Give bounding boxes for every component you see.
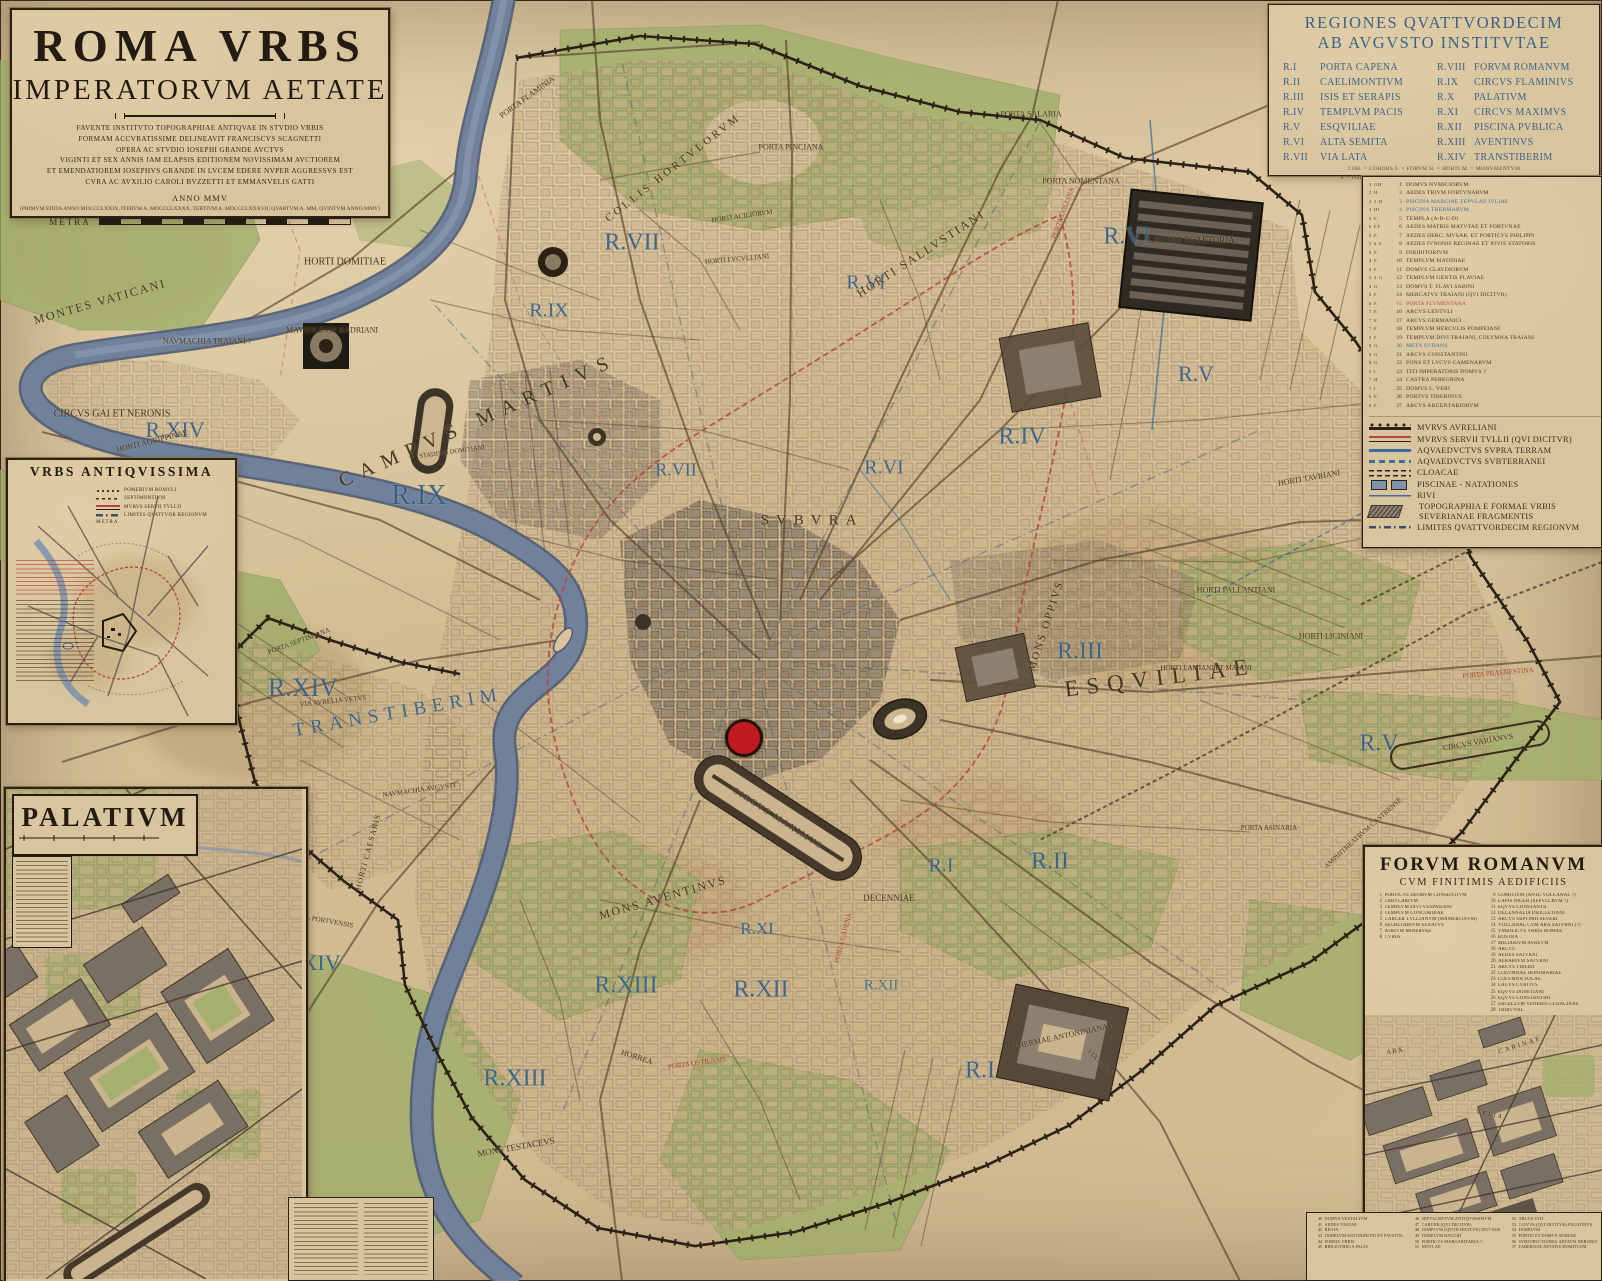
region-row: R.IVTEMPLVM PACIS [1283,105,1437,120]
monument-row: 6 F27ARCVS ARGENTARIORVM [1369,402,1601,410]
rivi-symbol [1369,491,1411,500]
urbs-antiquissima-inset: VRBS ANTIQVISSIMA POMERIVM ROMVLISEPTIMO… [6,458,237,725]
monument-row: 3 HI4PISCINA THERMARVM [1369,206,1601,214]
monument-row: 2 3 H3PISCINA MARCIAE TEPVLAE IVLIAE [1369,198,1601,206]
forma-symbol [1367,505,1403,518]
regiones-panel: REGIONES QVATTVORDECIM AB AVGVSTO INSTIT… [1268,4,1600,176]
monument-row: 5 F14MERCATVS TRAIANI (QVI DICITVR) [1369,291,1601,299]
castra-praetoria [1119,190,1263,321]
monument-row: 6 G21ARCVS CONSTANTINI [1369,351,1601,359]
monument-row: 7 E16ARCVS LENTVLI [1369,308,1601,316]
forum-list-left: 1PORTICVS DEORVM CONSENTIVM2TABVLARIVM3T… [1371,893,1485,1013]
palatium-inset: PALATIVM [4,787,308,1281]
forum-subtitle: CVM FINITIMIS AEDIFICIIS [1365,877,1602,888]
forum-bottom-col2: 46SEPVLCRETVM ANTIQVISSIMVM47CARCER (QVI… [1408,1216,1500,1277]
pomerium-symbol [96,488,120,494]
legend-row: AQVAEDVCTVS SVBTERRANEI [1369,457,1601,466]
region-row: R.IXCIRCVS FLAMINIVS [1437,75,1591,90]
mausoleum-hadriani [303,323,349,369]
region-row: R.VESQVILIAE [1283,120,1437,135]
forum-row: 57TABERNAE AETATIS DOMITIANI [1505,1244,1597,1250]
legend-row: CLOACAE [1369,468,1601,477]
urbs-legend-row: SEPTIMONTIVM [96,496,207,502]
region-row: R.XIIIAVENTINVS [1437,135,1591,150]
monument-row: 5 F19TEMPLVM DIVI TRAIANI, COLVMNA TRAIA… [1369,334,1601,342]
regiones-list-left: R.IPORTA CAPENAR.IICAELIMONTIVMR.IIIISIS… [1283,60,1437,165]
dedication-line: VIGINTI ET SEX ANNIS IAM ELAPSIS EDITION… [12,155,388,166]
piscinae-symbol [1369,480,1411,489]
monument-row: 7 F18TEMPLVM HERCVLIS POMPEIANI [1369,325,1601,333]
forum-row: 51INSVLAE [1408,1244,1500,1250]
urbs-legend-row: MVRVS SERVII TVLLII [96,504,207,510]
region-row: R.IIIISIS ET SERAPIS [1283,90,1437,105]
forum-list-right: 9COMITIVM (ANTE VOLCANAL ?)10LAPIS NIGER… [1485,893,1599,1013]
monument-row: 3 GH1DOMVS NVMICIORVM [1369,181,1601,189]
forum-bottom-lists: 40DOMVS VESTALIVM41AEDES VESTAE42REGIA43… [1306,1212,1602,1281]
regiones-title-line2: AB AVGVSTO INSTITVTAE [1269,33,1599,53]
anno-label: ANNO MMV [12,193,388,203]
roma-vrbs-map: R.VIIR.IXR.IXR.VIIR.VIR.VIR.VIR.IVR.VR.V… [0,0,1602,1281]
urbs-inset-legend: POMERIVM ROMVLISEPTIMONTIVMMVRVS SERVII … [96,486,207,525]
forum-row: 28TRIBVNAL [1485,1008,1599,1013]
region-row: R.IPORTA CAPENA [1283,60,1437,75]
palatium-bottom-key [288,1197,434,1281]
palatium-legend-box [12,856,72,948]
dedication-text: FAVENTE INSTITVTO TOPOGRAPHIAE ANTIQVAE … [12,123,388,188]
monument-row: 4 G13DOMVS T. FLAVI SABINI [1369,283,1601,291]
servian-symbol [1369,435,1411,444]
region-row: R.VIIVIA LATA [1283,150,1437,165]
monument-row: 5 E5TEMPLA (A-B-C-D) [1369,215,1601,223]
scale-bar [99,218,351,225]
palatium-scale-squiggle [14,833,164,843]
monument-row: 6 E15PORTA FLVMENTANA [1369,300,1601,308]
monument-row: 2 H2AEDES TRIVM FORTVNARVM [1369,189,1601,197]
theatre-marcellus [635,614,651,630]
dedication-line: OPERA AC STVDIO IOSEPHI GRANDE AVCTVS [12,145,388,156]
dedication-line: FAVENTE INSTITVTO TOPOGRAPHIAE ANTIQVAE … [12,123,388,134]
monument-row: 4 E10TEMPLVM MATIDIAE [1369,257,1601,265]
monument-row: 5 6 E8AEDES IVNONIS REGINAE ET IOVIS STA… [1369,240,1601,248]
palatium-title-box: PALATIVM [12,794,198,856]
map-subtitle: IMPERATORVM AETATE [12,74,388,107]
dedication-line: CVRA AC AVXILIO CAROLI BVZZETTI ET EMMAN… [12,177,388,188]
legend-row: MVRVS SERVII TVLLII (QVI DICITVR) [1369,435,1601,444]
dedication-line: ET EMENDATIOREM IOSEPHVS GRANDE IN LVCEM… [12,166,388,177]
palatium-title: PALATIVM [14,802,196,833]
abbreviation-line: COH. = COHORS F. = FORVM H. = HORTI M. =… [1269,165,1599,174]
monument-row: 4 F11DOMVS CLAVDIORVM [1369,266,1601,274]
legend-row: LIMITES QVATTVORDECIM REGIONVM [1369,523,1601,532]
urbs-legend-row: POMERIVM ROMVLI [96,488,207,494]
map-legend: MVRVS AVRELIANIMVRVS SERVII TVLLII (QVI … [1369,416,1601,532]
legend-row: PISCINAE - NATATIONES [1369,480,1601,489]
monument-row: 7 E17ARCVS GERMANICI [1369,317,1601,325]
dedication-line: FORMAM ACCVRATISSIME DELINEAVIT FRANCISC… [12,134,388,145]
monument-row: 6 E26PORTVS TIBERINVS [1369,393,1601,401]
title-cartouche: ROMA VRBS IMPERATORVM AETATE FAVENTE INS… [10,8,390,218]
legend-row: RIVI [1369,491,1601,500]
region-row: R.VIIIFORVM ROMANVM [1437,60,1591,75]
baths-diocletian [999,323,1101,412]
stadium-domitiani [408,386,456,476]
forum-title: FORVM ROMANVM [1365,854,1602,876]
urbs-inset-title: VRBS ANTIQVISSIMA [8,464,235,480]
monument-row: 5 E7AEDES HERC. MVSAR. ET PORTICVS PHILI… [1369,232,1601,240]
limites-symbol [96,512,120,518]
monument-row: 3 4 G12TEMPLVM GENTIS FLAVIAE [1369,274,1601,282]
urbs-inset-key [16,600,94,682]
urbs-inset-key-red [16,560,94,596]
regiones-list-right: R.VIIIFORVM ROMANVMR.IXCIRCVS FLAMINIVSR… [1437,60,1591,165]
legend-row: TOPOGRAPHIA E FORMAE VRBIS SEVERIANAE FR… [1369,502,1601,520]
editions-note: (PRIMVM EDITA ANNO MDCCCLXXIX, ITERVM A.… [12,206,388,212]
forum-row: 45BIBLIOTHECA PACIS [1311,1244,1403,1250]
aurelian-symbol [1369,423,1411,432]
monument-row: 5 I23TITI IMPERATORIS DOMVS ? [1369,368,1601,376]
forum-row: 8CVRIA [1371,935,1485,941]
legend-row: MVRVS AVRELIANI [1369,423,1601,432]
legend-row: AQVAEDVCTVS SVPRA TERRAM [1369,446,1601,455]
region-row: R.XICIRCVS MAXIMVS [1437,105,1591,120]
region-row: R.IICAELIMONTIVM [1283,75,1437,90]
monument-row: 6 EF6AEDES MATRIS MATVTAE ET FORTVNAE [1369,223,1601,231]
forum-bottom-col1: 40DOMVS VESTALIVM41AEDES VESTAE42REGIA43… [1311,1216,1403,1277]
decorative-rule [125,115,275,117]
regiones-title-line1: REGIONES QVATTVORDECIM [1269,13,1599,33]
numbered-monument-list: 3 GH1DOMVS NVMICIORVM2 H2AEDES TRIVM FOR… [1369,181,1601,410]
monument-row: 5 E9DIRIBITORIVM [1369,249,1601,257]
region-row: R.XPALATIVM [1437,90,1591,105]
metra-label: METRA [49,217,91,227]
region-row: R.XIIPISCINA PVBLICA [1437,120,1591,135]
forum-bottom-col3: 52ARCVS TITI53CLIVVS (QVI DICITVR) PALAT… [1505,1216,1597,1277]
urbs-legend-row: LIMITES QVATTVOR REGIONVM [96,512,207,518]
aqua-symbol [1369,446,1411,455]
servian-symbol [96,504,120,510]
location-marker [725,719,763,757]
limites-symbol [1369,523,1411,532]
reference-panel: 3 GH1DOMVS NVMICIORVM2 H2AEDES TRIVM FOR… [1362,176,1602,548]
cloacae-symbol [1369,469,1411,478]
urbs-metra-label: METRA [96,520,207,525]
monument-row: 6 G20META SVDANS [1369,342,1601,350]
region-row: R.XIVTRANSTIBERIM [1437,150,1591,165]
monument-row: 8 G22FONS ET LVCVS CAMENARVM [1369,359,1601,367]
map-title: ROMA VRBS [12,20,388,72]
septi-symbol [96,496,120,502]
monument-row: 7 I25DOMVS L. VERI [1369,385,1601,393]
region-row: R.VIALTA SEMITA [1283,135,1437,150]
aquasub-symbol [1369,457,1411,466]
monument-row: 7 H24CASTRA PEREGRINA [1369,376,1601,384]
